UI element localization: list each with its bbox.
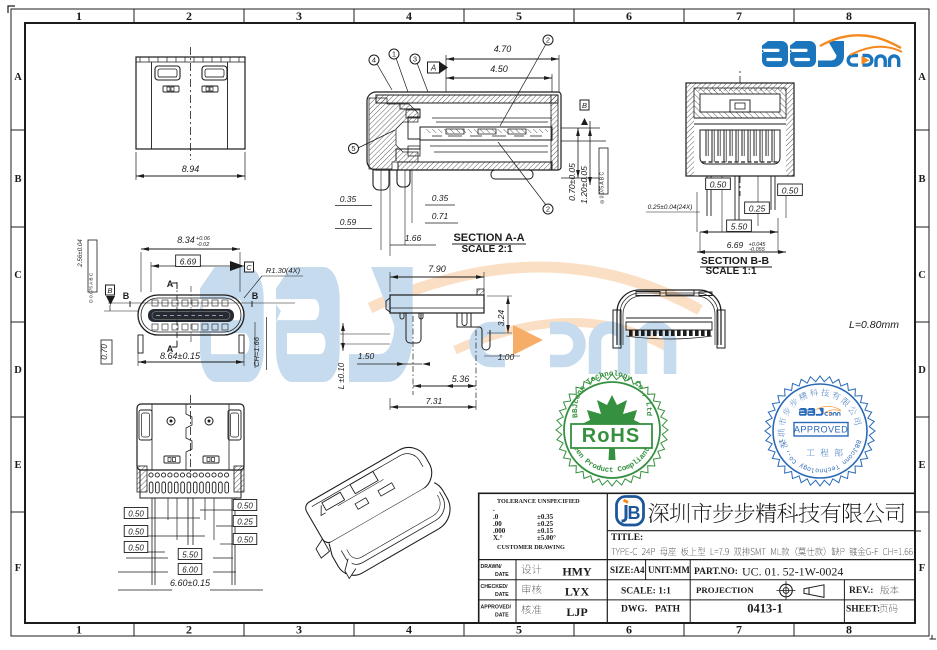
svg-text:PROJECTION: PROJECTION bbox=[696, 585, 754, 595]
svg-text:L=0.80mm: L=0.80mm bbox=[849, 319, 899, 331]
svg-text:HMY: HMY bbox=[562, 565, 592, 579]
svg-text:B: B bbox=[107, 286, 112, 295]
svg-text:CHECKED/: CHECKED/ bbox=[481, 584, 509, 590]
svg-text:.: . bbox=[493, 505, 495, 513]
svg-text:LYX: LYX bbox=[565, 585, 590, 599]
svg-text:C: C bbox=[918, 270, 926, 281]
svg-text:C: C bbox=[246, 263, 252, 272]
svg-text:B: B bbox=[252, 291, 259, 301]
svg-text:3: 3 bbox=[413, 55, 417, 64]
svg-text:UC. 01. 52-1W-0024: UC. 01. 52-1W-0024 bbox=[742, 565, 843, 579]
svg-text:CUSTOMER DRAWING: CUSTOMER DRAWING bbox=[497, 544, 565, 551]
svg-text:1.50: 1.50 bbox=[358, 351, 375, 361]
svg-text:4.50: 4.50 bbox=[490, 64, 508, 74]
svg-text:1: 1 bbox=[76, 623, 82, 637]
svg-text:F: F bbox=[919, 563, 925, 574]
svg-text:6.00: 6.00 bbox=[182, 566, 198, 575]
svg-text:6.60±0.15: 6.60±0.15 bbox=[170, 578, 211, 588]
svg-text:2: 2 bbox=[186, 623, 192, 637]
svg-text:8.34: 8.34 bbox=[177, 235, 195, 245]
svg-text:SECTION A-A: SECTION A-A bbox=[453, 232, 524, 244]
svg-text:B: B bbox=[582, 101, 587, 110]
svg-text:5: 5 bbox=[351, 144, 355, 153]
svg-text:1.20±0.05: 1.20±0.05 bbox=[579, 166, 589, 204]
svg-text:2: 2 bbox=[546, 205, 550, 214]
svg-text:5.50: 5.50 bbox=[731, 222, 748, 232]
svg-text:2: 2 bbox=[546, 36, 550, 45]
svg-text:7.31: 7.31 bbox=[426, 396, 443, 406]
svg-text:B: B bbox=[123, 291, 130, 301]
svg-text:0.50: 0.50 bbox=[128, 528, 144, 537]
svg-text:7: 7 bbox=[736, 623, 742, 637]
svg-text:REV.:: REV.: bbox=[849, 586, 873, 596]
svg-text:A: A bbox=[167, 279, 174, 289]
svg-text:L ±0.10: L ±0.10 bbox=[337, 362, 346, 389]
svg-text:⊙ 0.075 A B C: ⊙ 0.075 A B C bbox=[89, 272, 95, 303]
svg-text:3: 3 bbox=[296, 623, 302, 637]
svg-text:LJP: LJP bbox=[566, 605, 587, 619]
svg-text:D: D bbox=[918, 365, 926, 376]
svg-text:0.50: 0.50 bbox=[237, 536, 253, 545]
svg-text:-0.02: -0.02 bbox=[197, 242, 210, 248]
svg-text:0.50: 0.50 bbox=[128, 510, 144, 519]
svg-text:APPROVED: APPROVED bbox=[794, 425, 848, 435]
svg-text:0.25±0.04(24X): 0.25±0.04(24X) bbox=[648, 204, 693, 211]
svg-text:DRAWN/: DRAWN/ bbox=[481, 564, 503, 570]
svg-text:UNIT:MM: UNIT:MM bbox=[648, 565, 690, 575]
svg-text:A: A bbox=[14, 72, 22, 83]
svg-text:SCALE 2:1: SCALE 2:1 bbox=[461, 244, 513, 255]
svg-text:0.71: 0.71 bbox=[432, 211, 449, 221]
svg-text:5.50: 5.50 bbox=[182, 551, 198, 560]
svg-text:SHEET:: SHEET: bbox=[846, 605, 880, 615]
svg-text:APPROVED/: APPROVED/ bbox=[481, 604, 512, 610]
svg-text:1.66: 1.66 bbox=[405, 233, 422, 243]
svg-text:SCALE: 1:1: SCALE: 1:1 bbox=[621, 587, 671, 597]
svg-text:R1.30(4X): R1.30(4X) bbox=[266, 266, 301, 275]
svg-text:C: C bbox=[14, 270, 22, 281]
svg-text:F: F bbox=[15, 563, 21, 574]
svg-text:RoHS: RoHS bbox=[582, 425, 640, 447]
svg-text:B: B bbox=[628, 503, 641, 523]
svg-text:5.36: 5.36 bbox=[452, 374, 470, 384]
svg-text:3.24: 3.24 bbox=[496, 309, 506, 326]
svg-text:8.94: 8.94 bbox=[182, 164, 200, 174]
svg-text:4.70: 4.70 bbox=[494, 44, 512, 54]
svg-text:5: 5 bbox=[516, 9, 522, 23]
svg-text:PATH: PATH bbox=[655, 605, 681, 615]
svg-text:B: B bbox=[14, 174, 21, 185]
svg-text:4: 4 bbox=[406, 9, 412, 23]
svg-text:0.35: 0.35 bbox=[432, 193, 449, 203]
svg-text:0.25: 0.25 bbox=[749, 204, 766, 214]
svg-text:6: 6 bbox=[626, 9, 632, 23]
svg-text:2.56±0.04: 2.56±0.04 bbox=[77, 239, 84, 268]
svg-text:1.00: 1.00 bbox=[498, 352, 515, 362]
svg-text:8.64±0.15: 8.64±0.15 bbox=[160, 351, 201, 361]
svg-text:0.50: 0.50 bbox=[710, 180, 727, 190]
svg-text:2: 2 bbox=[186, 9, 192, 23]
svg-text:5: 5 bbox=[516, 623, 522, 637]
svg-text:SIZE:A4: SIZE:A4 bbox=[610, 565, 645, 575]
svg-text:DATE: DATE bbox=[495, 572, 509, 578]
svg-text:0.25: 0.25 bbox=[237, 518, 253, 527]
svg-text:0.50: 0.50 bbox=[782, 186, 799, 196]
svg-text:±5.00°: ±5.00° bbox=[537, 534, 556, 542]
svg-text:3: 3 bbox=[296, 9, 302, 23]
svg-text:D: D bbox=[14, 365, 22, 376]
svg-text:CH=1.66: CH=1.66 bbox=[252, 336, 261, 367]
svg-text:7.90: 7.90 bbox=[428, 264, 446, 274]
svg-text:0.59: 0.59 bbox=[340, 217, 357, 227]
svg-text:E: E bbox=[14, 460, 21, 471]
svg-text:8: 8 bbox=[846, 623, 852, 637]
svg-text:4: 4 bbox=[372, 56, 376, 65]
svg-text:8: 8 bbox=[846, 9, 852, 23]
svg-text:0.35: 0.35 bbox=[340, 194, 357, 204]
svg-text:6.69: 6.69 bbox=[180, 257, 197, 267]
svg-text:6: 6 bbox=[626, 623, 632, 637]
svg-text:0.50: 0.50 bbox=[128, 544, 144, 553]
svg-text:1: 1 bbox=[76, 9, 82, 23]
svg-text:X.°: X.° bbox=[493, 534, 503, 542]
svg-text:6.69: 6.69 bbox=[727, 240, 744, 250]
svg-text:TOLERANCE UNSPECIFIED: TOLERANCE UNSPECIFIED bbox=[497, 498, 580, 505]
svg-text:DWG.: DWG. bbox=[621, 605, 647, 615]
svg-text:A: A bbox=[918, 72, 926, 83]
svg-text:A: A bbox=[430, 64, 436, 73]
svg-text:◎ 0.075 A B C: ◎ 0.075 A B C bbox=[600, 172, 606, 205]
svg-text:1: 1 bbox=[392, 50, 396, 59]
svg-text:TITLE:: TITLE: bbox=[611, 533, 643, 543]
svg-text:0.50: 0.50 bbox=[237, 502, 253, 511]
svg-text:B: B bbox=[918, 174, 925, 185]
svg-text:0.70±0.05: 0.70±0.05 bbox=[567, 163, 577, 201]
svg-text:E: E bbox=[918, 460, 925, 471]
svg-text:DATE: DATE bbox=[495, 592, 509, 598]
svg-text:4: 4 bbox=[406, 623, 412, 637]
svg-text:SCALE 1:1: SCALE 1:1 bbox=[705, 266, 757, 277]
svg-text:DATE: DATE bbox=[495, 612, 509, 618]
svg-text:0413-1: 0413-1 bbox=[747, 602, 782, 616]
svg-text:7: 7 bbox=[736, 9, 742, 23]
svg-text:PART.NO:: PART.NO: bbox=[694, 567, 738, 577]
